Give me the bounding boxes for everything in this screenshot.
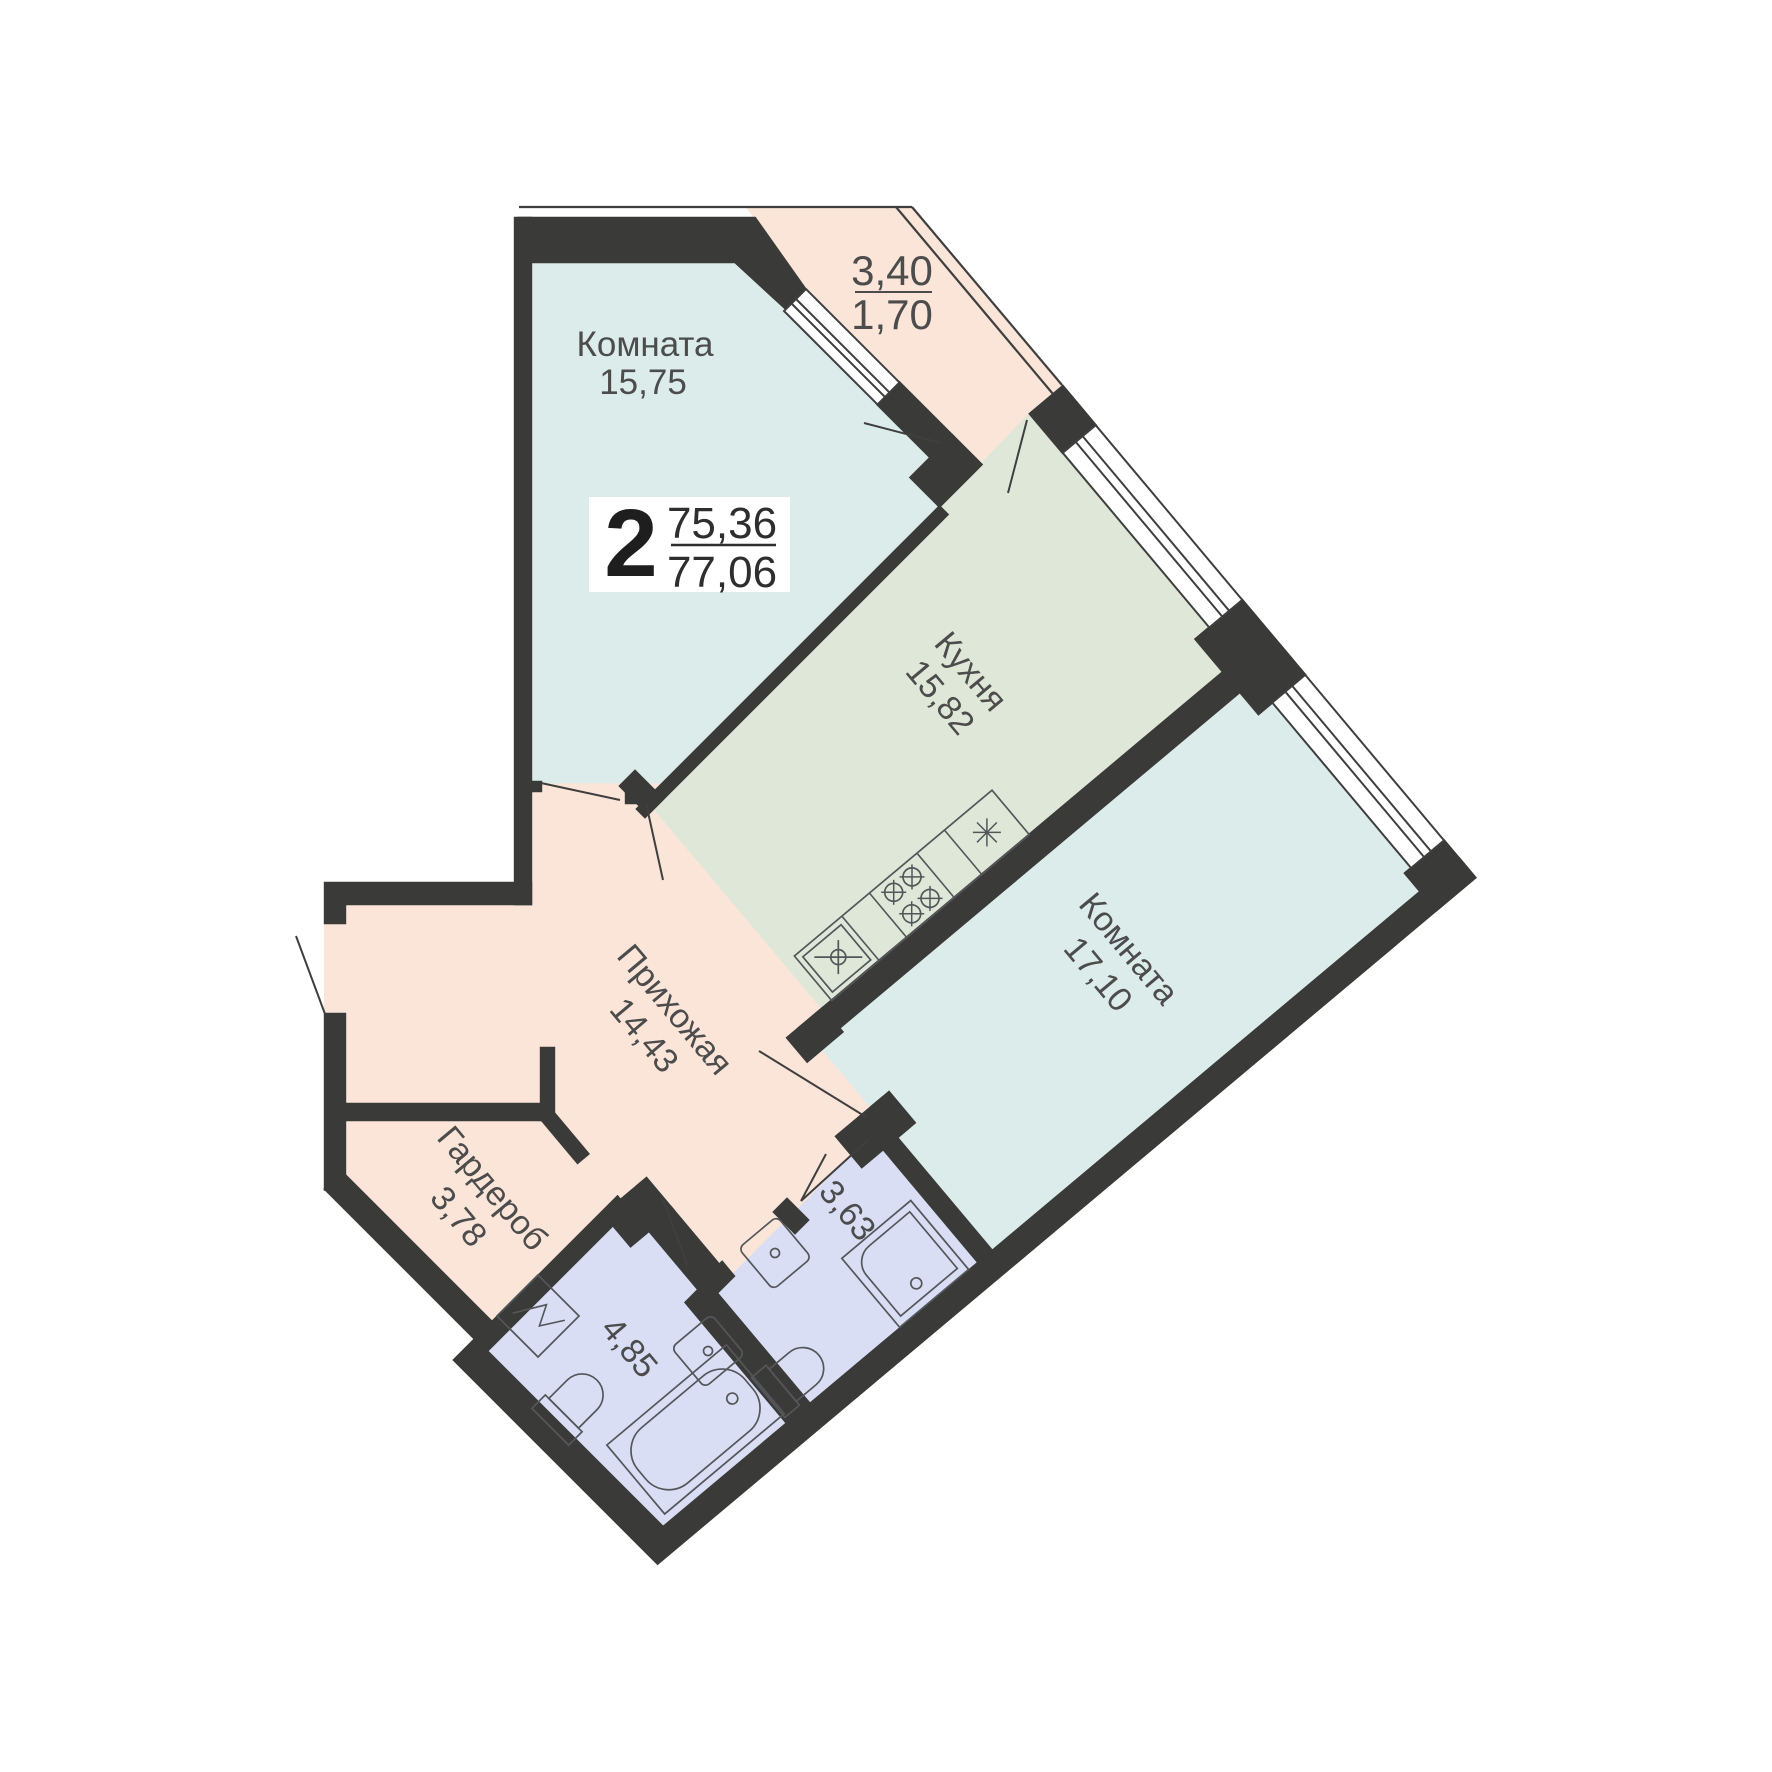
svg-text:77,06: 77,06 bbox=[667, 548, 777, 597]
svg-text:3,40: 3,40 bbox=[851, 247, 933, 294]
svg-text:15,75: 15,75 bbox=[599, 363, 687, 402]
svg-text:75,36: 75,36 bbox=[667, 499, 777, 548]
svg-text:1,70: 1,70 bbox=[851, 291, 933, 338]
svg-text:2: 2 bbox=[604, 490, 657, 597]
svg-text:Комната: Комната bbox=[576, 325, 714, 364]
